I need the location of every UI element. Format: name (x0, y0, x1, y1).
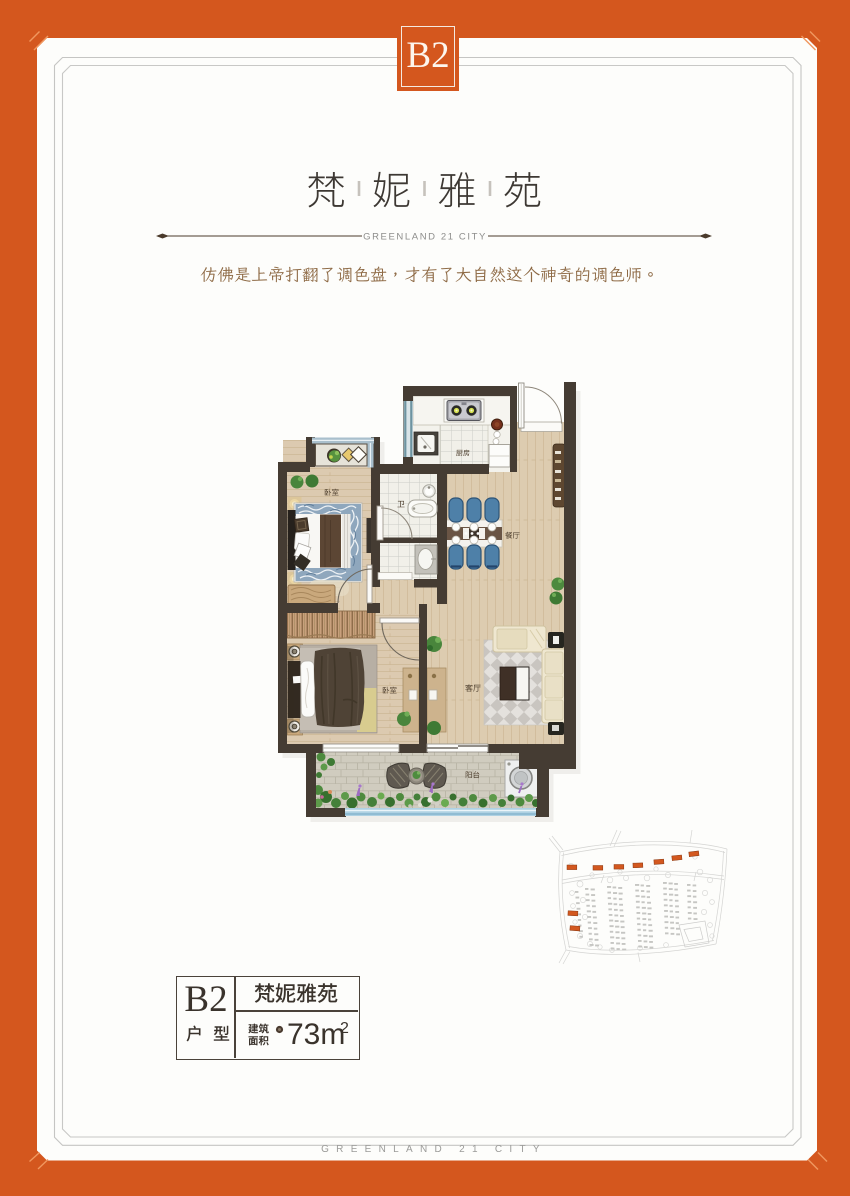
svg-text:73m: 73m (287, 1018, 345, 1051)
svg-text:2: 2 (340, 1020, 349, 1037)
